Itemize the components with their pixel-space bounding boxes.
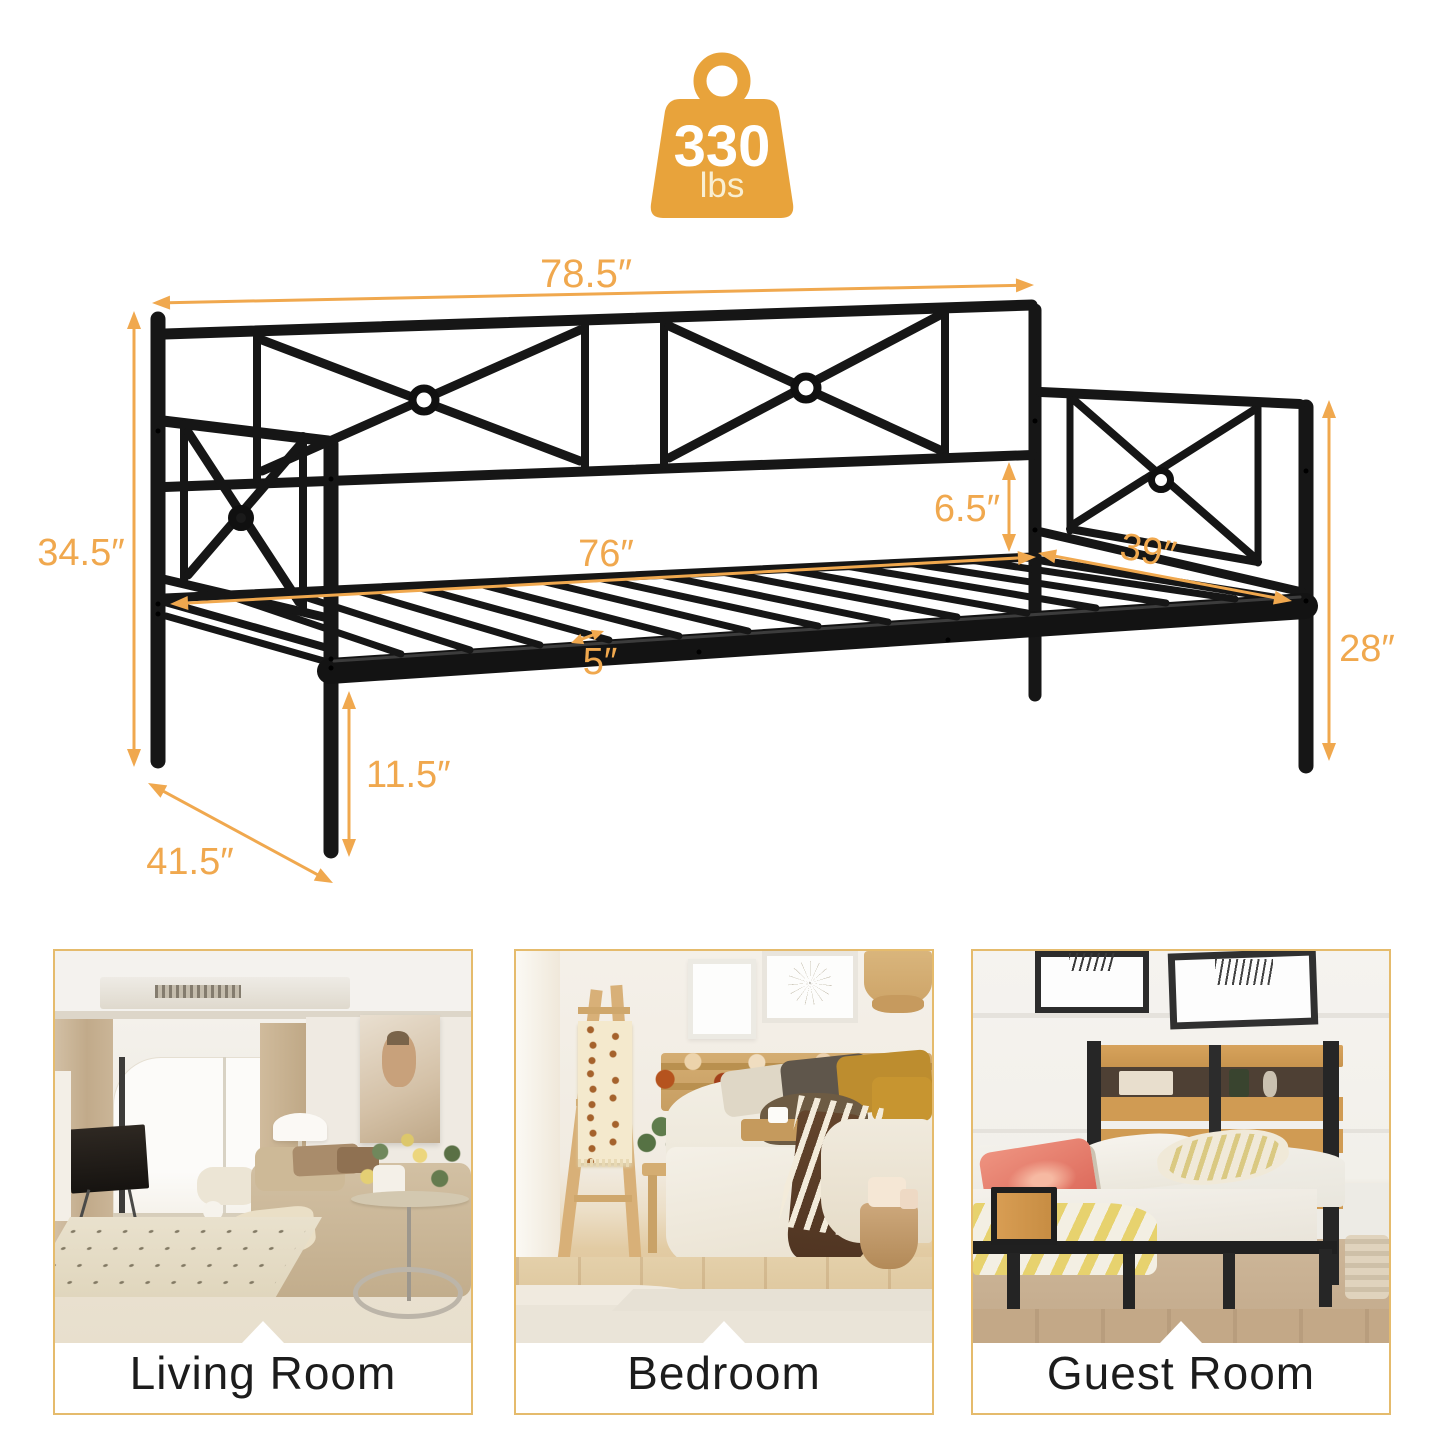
- svg-text:78.5″: 78.5″: [540, 252, 632, 296]
- svg-text:76″: 76″: [578, 533, 634, 575]
- svg-text:6.5″: 6.5″: [934, 488, 1000, 530]
- svg-text:5″: 5″: [583, 641, 618, 683]
- svg-text:lbs: lbs: [700, 166, 745, 205]
- svg-text:28″: 28″: [1339, 628, 1395, 670]
- svg-text:34.5″: 34.5″: [37, 532, 124, 574]
- svg-text:11.5″: 11.5″: [366, 754, 451, 796]
- svg-text:41.5″: 41.5″: [146, 841, 233, 883]
